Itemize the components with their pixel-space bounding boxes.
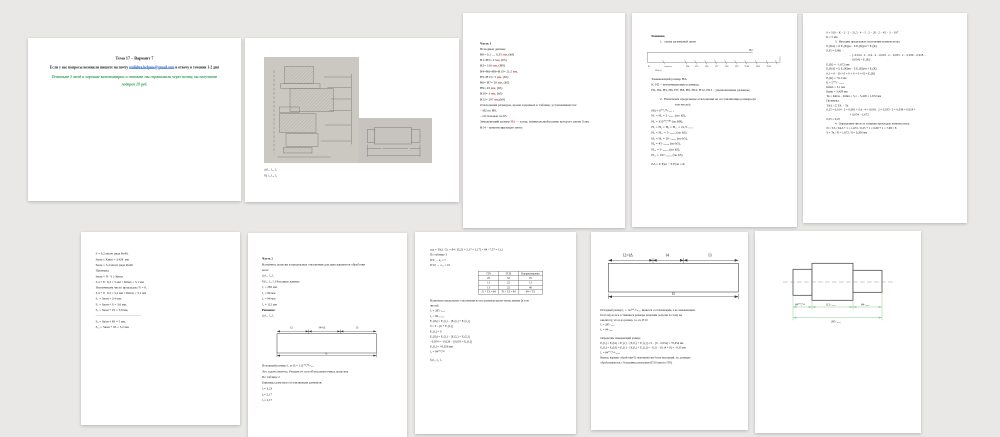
assembly-section-drawing-photo [264, 57, 359, 163]
page-5-calculations[interactable]: 0 = 310 − К − 2 ∙ 2 − 21,5 ∙ 4 − 5 ∙ 2 −… [803, 13, 967, 223]
page-7-part2[interactable]: Часть 2Назначить допуски и предельные от… [248, 233, 407, 437]
text-line: б) l₁, l₂, l₄ [430, 358, 576, 363]
page-2-drawings[interactable]: а) l₁, l₂, l₃ б) l₁, l₂, l₄ [245, 38, 459, 202]
text-line: S₁₀ = Sком + 9S = 5,2 мм. [96, 325, 240, 331]
page-8-tolerance-table[interactable]: аср = ТАΔ / Σiᵢ = 84 / (3,23 + 2,17 + 2,… [415, 232, 576, 434]
text-segment: Н12= 197 [480, 98, 494, 102]
tolerance-table-block: IT9IT10Корректировка25322513221313224651… [430, 271, 576, 294]
document-preview-canvas: Тема 17 – Вариант 7 Если у вас вопросы в… [0, 0, 1000, 437]
dim-text-overall: 285₋₀,₂₁ [831, 319, 841, 324]
text-segment: , (h5) [499, 58, 506, 62]
tolerance-table: IT9IT10Корректировка25322513221313224651… [478, 271, 542, 294]
chain-label: Н4 [686, 65, 690, 68]
text-line: 1. схема размерной цепи [651, 39, 797, 45]
table-cell: 84 = ТΔ [518, 290, 542, 294]
contact-prefix: Если у вас вопросы возникли пишите на по… [50, 65, 129, 69]
assembly-sketch [264, 57, 359, 163]
chain-closing-label: НΔ=0 [655, 69, 662, 72]
text-line: Н14 – компенсирующее звено [480, 125, 625, 131]
text-segment: , (h5) [495, 92, 502, 96]
text-block: Замыкающий размер НΔ.К, Н2 – увеличивающ… [651, 77, 797, 168]
dim-text-right: 84₋₀,₂₂ [861, 302, 869, 307]
chain-label: Н7 [715, 65, 719, 68]
page-6-shim-series[interactable]: S = 0,2 мм из ряда Ra40,Sком ≤ Кmin = 3,… [81, 232, 240, 425]
page-2-content: а) l₁, l₂, l₃ б) l₁, l₂, l₄ [245, 38, 459, 202]
text-block: Часть 2Назначить допуски и предельные от… [262, 256, 407, 319]
dim-label-l4: l4=lΔ [319, 325, 326, 329]
page-4-content: Решение.1. схема размерной цепи [632, 13, 797, 227]
text-segment: Н0= 0,1 … 0,35 [480, 53, 503, 57]
chain-label: Н6 [705, 65, 709, 68]
text-line: ЕΔ = Σ Еув − Σ Еум = К [651, 162, 797, 168]
page-6-content: S = 0,2 мм из ряда Ra40,Sком ≤ Кmin = 3,… [81, 232, 240, 425]
dim-text-mid: 112₋₀,₃₅ [826, 302, 836, 307]
text-block: аср = ТАΔ / Σiᵢ = 84 / (3,23 + 2,17 + 2,… [430, 247, 576, 267]
dim-label-l3: l3 [708, 253, 711, 258]
dim-label-l1: l1 [672, 291, 675, 296]
chain-label: Н8 [725, 65, 729, 68]
page-title: Тема 17 – Вариант 7 [28, 56, 241, 61]
text-line: обрабатываются с большими допусками (IT1… [600, 360, 748, 365]
text-block: Решение.1. схема размерной цепи [651, 34, 797, 45]
text-segment: Н9= 45 [480, 86, 491, 90]
chain-label: К [648, 65, 650, 68]
page-1-content: Тема 17 – Вариант 7 Если у вас вопросы в… [28, 38, 241, 201]
text-block: Исходный размер l₄ = 112⁺⁰,³⁵₊₀,₁ являет… [600, 308, 748, 366]
chain-label: Н9 [735, 65, 739, 68]
text-segment: , (h5) [502, 81, 509, 85]
page-7-content: Часть 2Назначить допуски и предельные от… [248, 233, 407, 437]
caption-b: б) l₁, l₂, l₄ [264, 173, 277, 179]
page-9-variant-b[interactable]: l2=lΔ l4 l3 l1 Исходный размер l₄ = 112⁺… [591, 232, 748, 430]
dim-label-l2-delta: l2=lΔ [623, 253, 633, 258]
text-block: 0 = 310 − К − 2 ∙ 2 − 21,5 ∙ 4 − 5 ∙ 2 −… [826, 30, 967, 135]
page-3-initial-data[interactable]: Часть 1Исходные данныеН0= 0,1 … 0,35 мм,… [463, 13, 625, 228]
dim-label-l2: l2 [290, 325, 293, 329]
table-cell: 51 < ТΔ = 84 [479, 290, 499, 294]
email-link[interactable]: stulishta.helpme@gmail.com [129, 65, 174, 69]
dim-text-left: 84⁺⁰,⁰⁵⁴ [795, 302, 805, 307]
text-segment: Н4=Н6=Н8=Н13= 21,5 [480, 70, 513, 74]
contact-suffix: и отвечу в течении 1-2 дня [174, 65, 219, 69]
page-5-content: 0 = 310 − К − 2 ∙ 2 − 21,5 ∙ 4 − 5 ∙ 2 −… [803, 13, 967, 223]
text-segment: Н10= 3 [480, 92, 491, 96]
shaft-sketch [358, 118, 432, 163]
text-segment: , (h5) [501, 75, 508, 79]
text-line: IT10 → а₁₀ = 10 [430, 263, 576, 268]
text-segment: Н5=Н13= 5 [480, 75, 497, 79]
text-segment: — зазор, номинальный размер которого рав… [515, 120, 590, 124]
text-segment: , (h5) [495, 86, 502, 90]
chain-label: Н13 [767, 65, 772, 68]
page-3-content: Часть 1Исходные данныеН0= 0,1 … 0,35 мм,… [463, 13, 625, 228]
contact-line: Если у вас вопросы возникли пишите на по… [38, 64, 231, 70]
page-1-title[interactable]: Тема 17 – Вариант 7 Если у вас вопросы в… [28, 38, 241, 201]
chain-label: Н5 [695, 65, 699, 68]
page-10-content: 84⁺⁰,⁰⁵⁴ 112₋₀,₃₅ 84₋₀,₂₂ 285₋₀,₂₁ [755, 231, 921, 433]
chain-top-label: Н2 [749, 49, 753, 52]
text-segment: Замыкающий размер [480, 120, 511, 124]
page-10-shaft-drawing[interactable]: 84⁺⁰,⁰⁵⁴ 112₋₀,₃₅ 84₋₀,₂₂ 285₋₀,₂₁ [755, 231, 921, 433]
chain-label: Н10 [745, 65, 750, 68]
text-line: i₃= 2,17 [262, 398, 407, 404]
drawing-captions: а) l₁, l₂, l₃ б) l₁, l₂, l₄ [264, 167, 277, 178]
text-segment: , [517, 70, 518, 74]
shaft-drawing-photo [358, 118, 432, 163]
text-block: Часть 1Исходные данныеН0= 0,1 … 0,35 мм,… [480, 41, 625, 131]
text-segment: , (Н9) [497, 64, 505, 68]
text-line: S = Тк / N = 1,672 / 8 = 0,209 мм [826, 131, 967, 136]
chain-label: Н12 [756, 65, 761, 68]
page-9-content: l2=lΔ l4 l3 l1 Исходный размер l₄ = 112⁺… [591, 232, 748, 430]
dimension-chain-diagram: Н2 К колесо Н4 Н5 Н6 Н7 Н8 Н9 Н10 Н12 Н1… [645, 48, 797, 74]
text-block: Назначаем предельные отклонения на все р… [430, 298, 576, 363]
chain-label: колесо [665, 65, 673, 68]
text-segment: Н1=Н5= 2 [480, 58, 495, 62]
shaft-scheme-diagram-a: l2 l4=lΔ l3 l1 [272, 324, 407, 360]
text-segment: Н6= Н7= 20 [480, 81, 498, 85]
page-4-solution[interactable]: Решение.1. схема размерной цепи [632, 13, 797, 227]
table-cell: 76 < ТΔ = 84 [499, 290, 519, 294]
shaft-scheme-diagram-b: l2=lΔ l4 l3 l1 [602, 251, 748, 303]
dim-label-l4: l4 [666, 253, 670, 258]
text-line: а) l₁, l₂, l₃ [262, 313, 407, 319]
text-block: S = 0,2 мм из ряда Ra40,Sком ≤ Кmin = 3,… [96, 251, 240, 330]
text-segment: Н2= 310 [480, 64, 493, 68]
dim-label-l1: l1 [325, 352, 328, 356]
dim-label-l3: l3 [356, 325, 359, 329]
page-8-content: аср = ТАΔ / Σiᵢ = 84 / (3,23 + 2,17 + 2,… [415, 232, 576, 434]
text-block: Исходный размер: l₄ и lΔ = 112⁺⁰,³⁵₊₀,₁Э… [262, 363, 407, 403]
text-segment: , (h9) [507, 53, 514, 57]
promo-text: Оставьте 5 звезд и хорошие комментарии и… [48, 73, 221, 88]
text-segment: = 2,17 [264, 399, 272, 402]
text-segment: ,(h9) [499, 98, 505, 102]
cad-shaft-drawing: 84⁺⁰,⁰⁵⁴ 112₋₀,₃₅ 84₋₀,₂₂ 285₋₀,₂₁ [755, 244, 921, 344]
